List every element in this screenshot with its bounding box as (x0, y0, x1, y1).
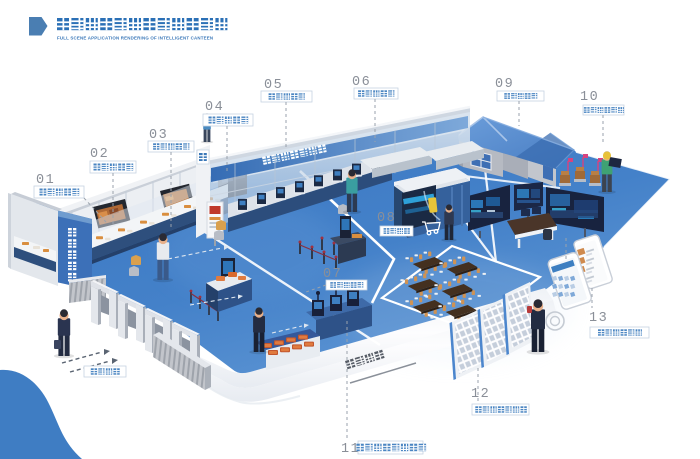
svg-text:FULL SCENE APPLICATION RENDERI: FULL SCENE APPLICATION RENDERING OF INTE… (57, 36, 213, 41)
svg-text:10: 10 (580, 90, 599, 105)
svg-text:04: 04 (205, 100, 224, 115)
svg-text:08: 08 (377, 211, 396, 226)
svg-text:13: 13 (589, 311, 608, 326)
svg-text:12: 12 (471, 387, 490, 402)
svg-text:02: 02 (90, 147, 109, 162)
svg-text:09: 09 (495, 77, 514, 92)
